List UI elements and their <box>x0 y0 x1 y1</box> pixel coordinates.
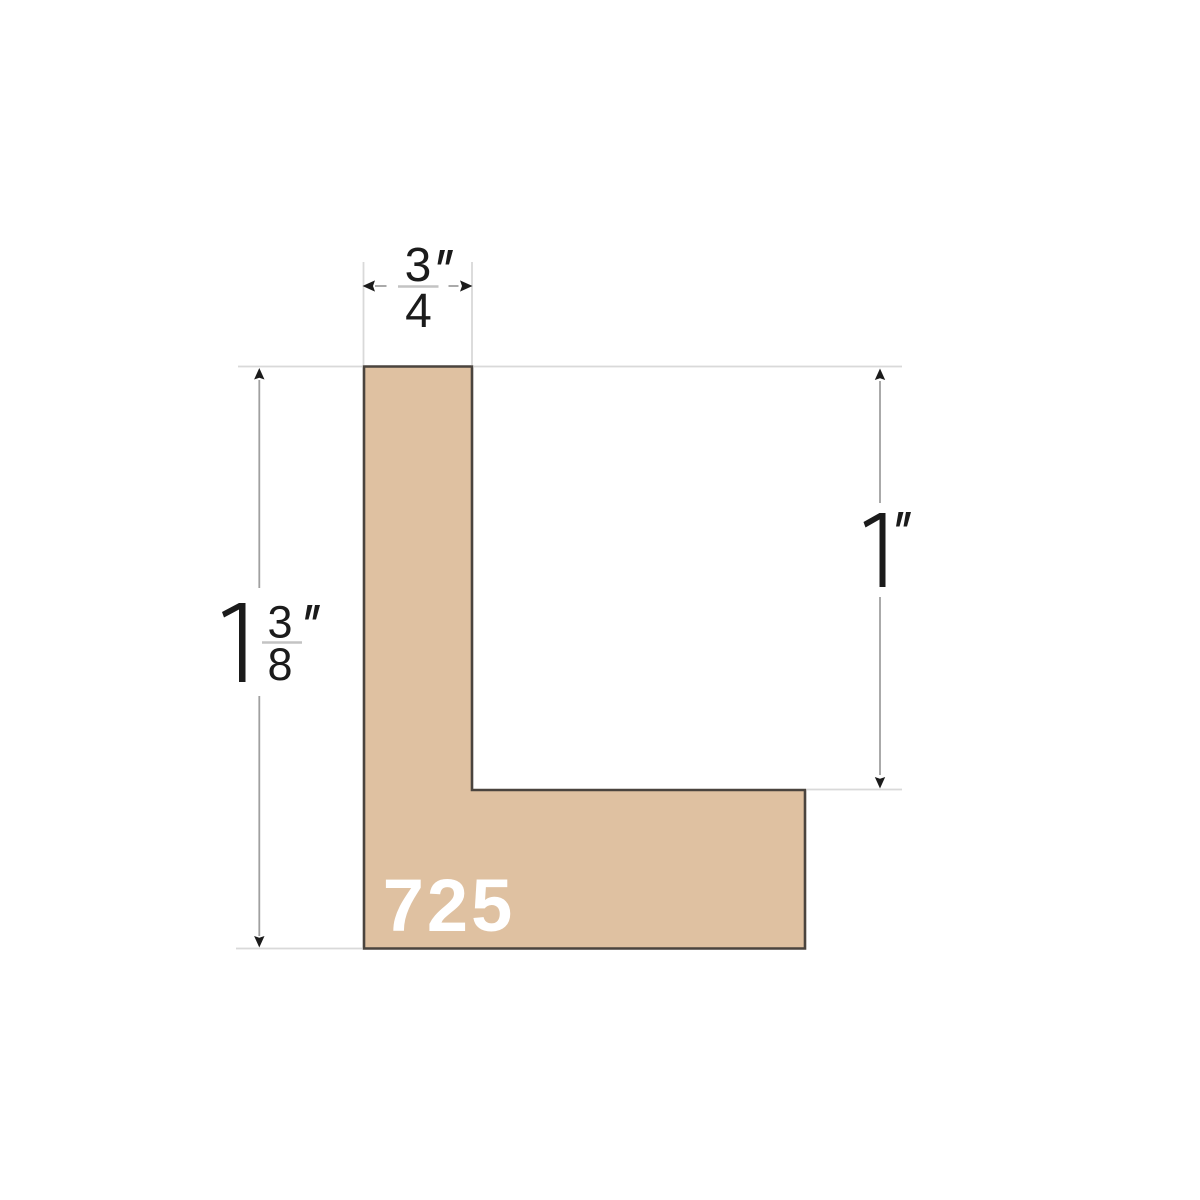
svg-text:725: 725 <box>383 864 515 947</box>
svg-text:8: 8 <box>267 639 292 690</box>
svg-text:4: 4 <box>405 285 432 338</box>
